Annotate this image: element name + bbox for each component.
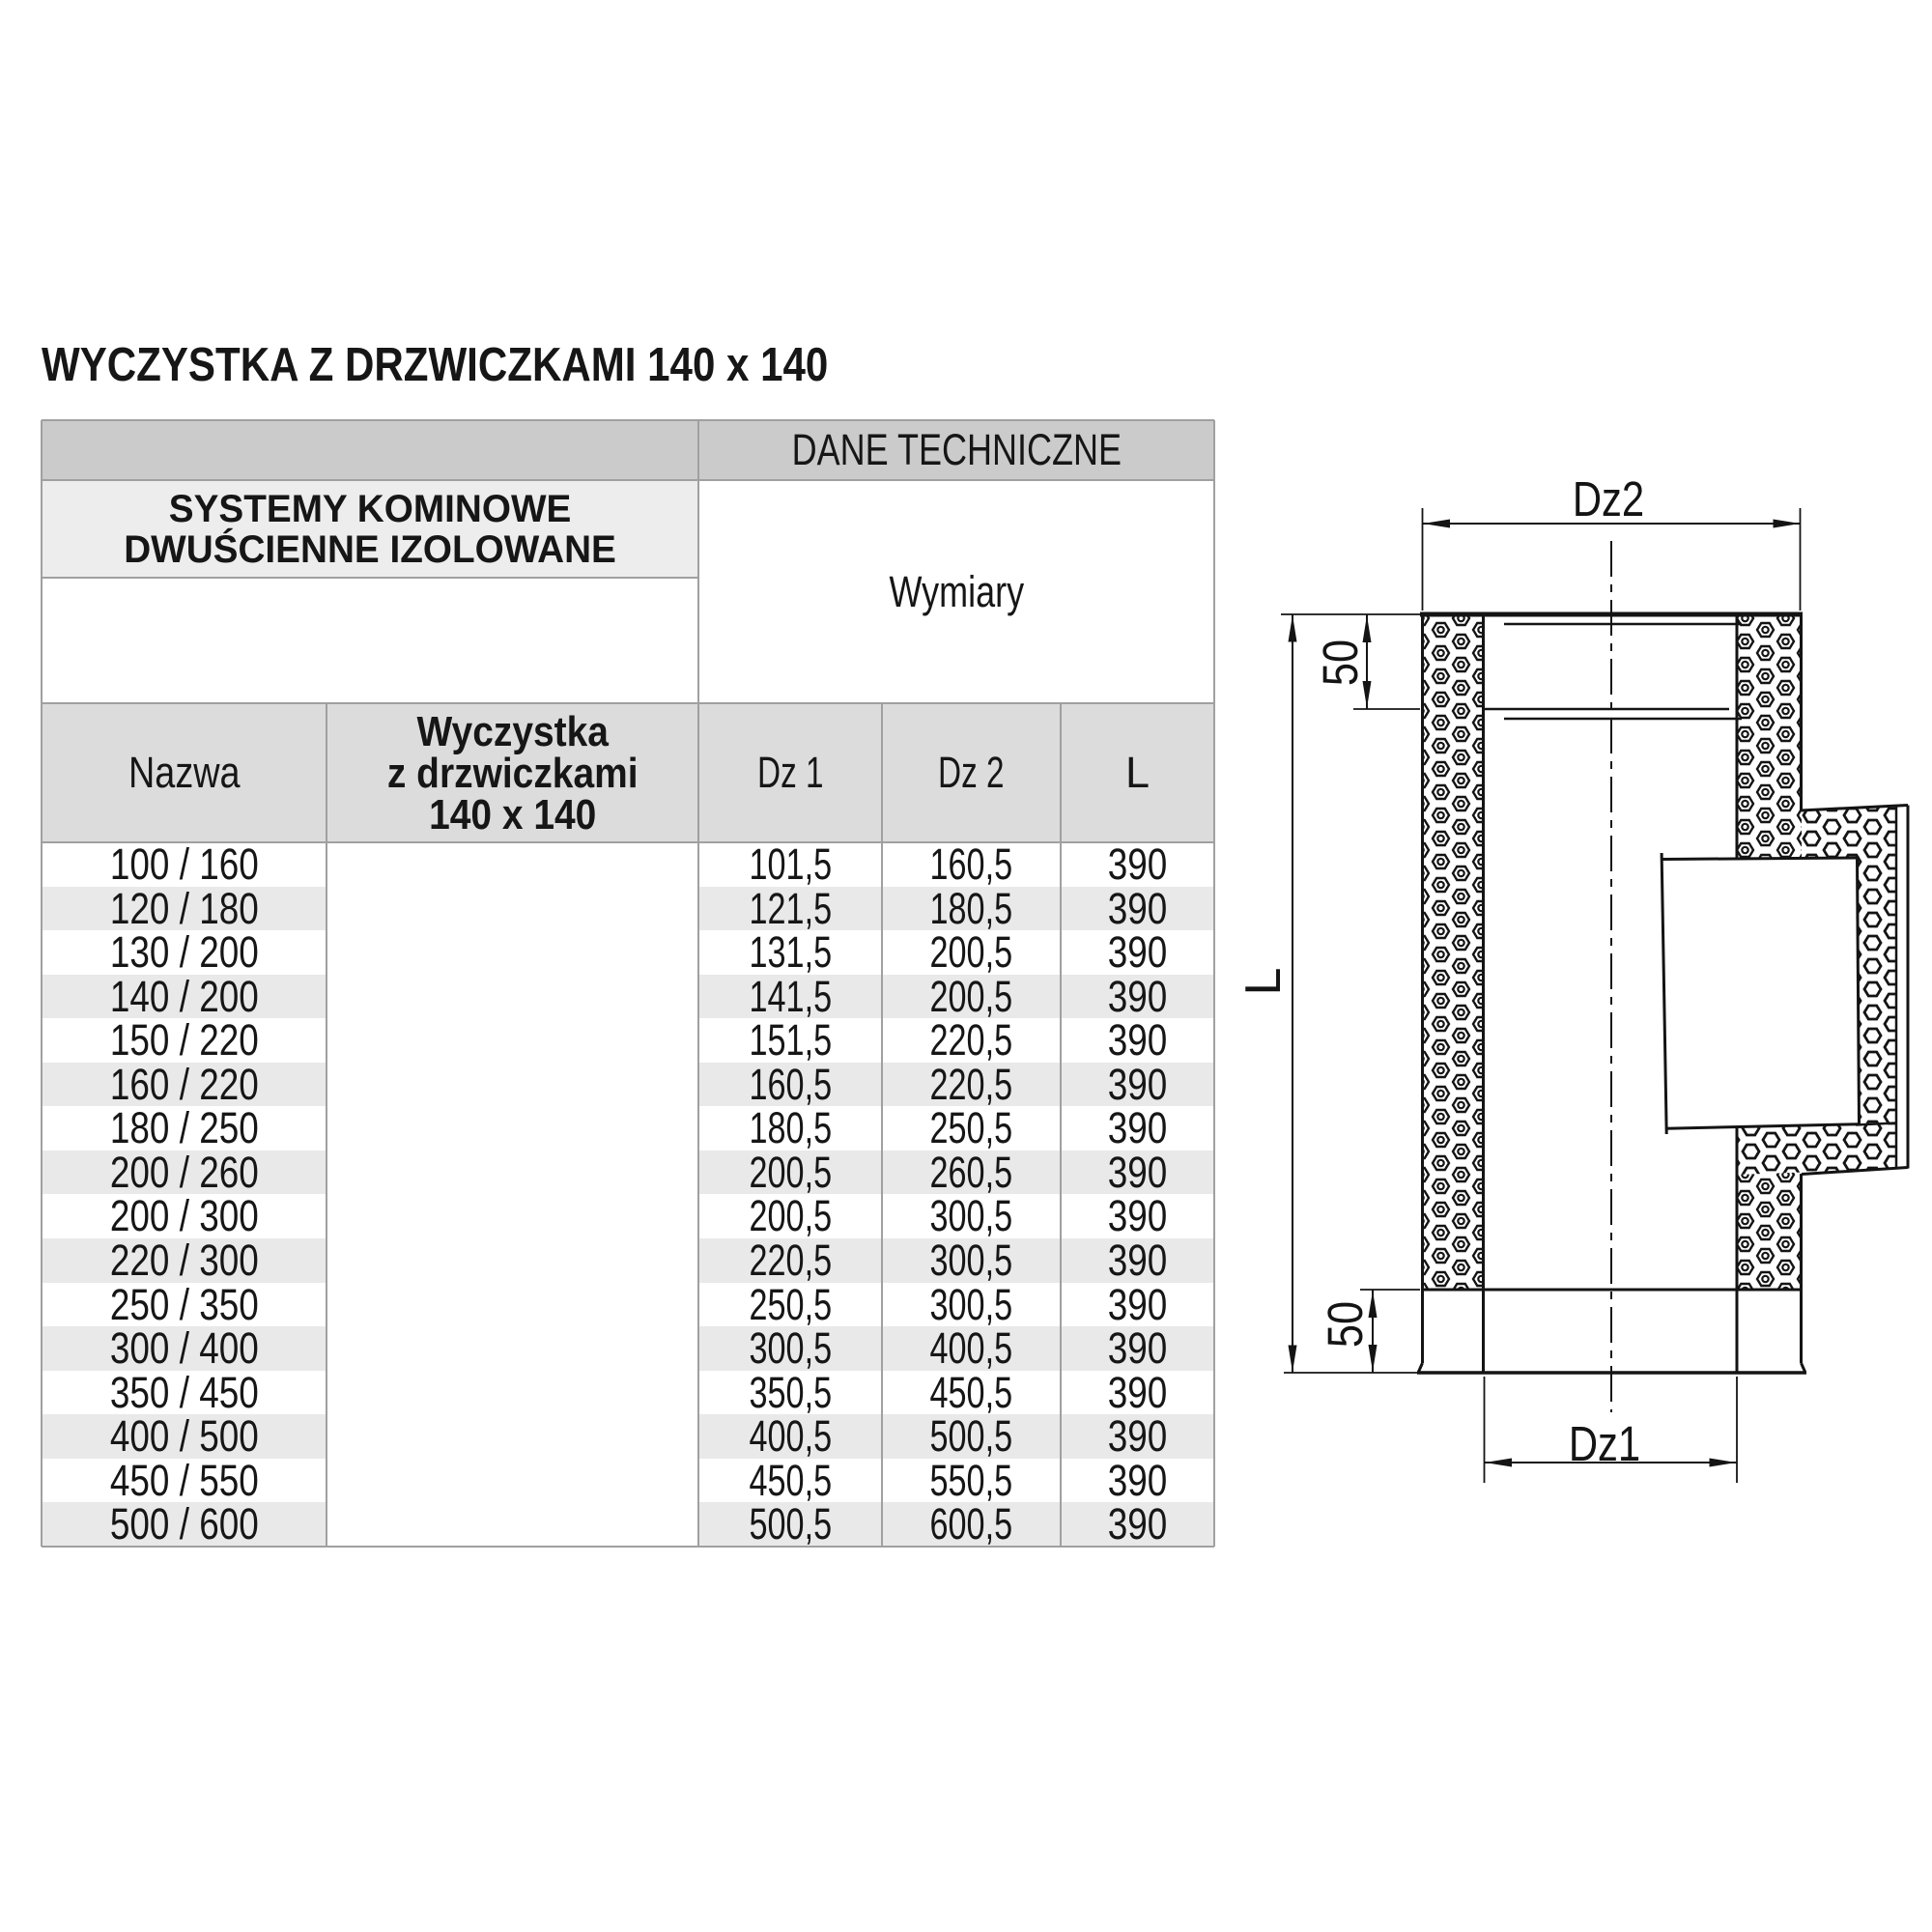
- svg-text:50: 50: [1319, 1301, 1374, 1348]
- svg-text:L: L: [1236, 968, 1292, 996]
- svg-text:Dz1: Dz1: [1569, 1416, 1640, 1471]
- svg-text:Dz2: Dz2: [1573, 471, 1644, 526]
- svg-text:50: 50: [1314, 639, 1369, 686]
